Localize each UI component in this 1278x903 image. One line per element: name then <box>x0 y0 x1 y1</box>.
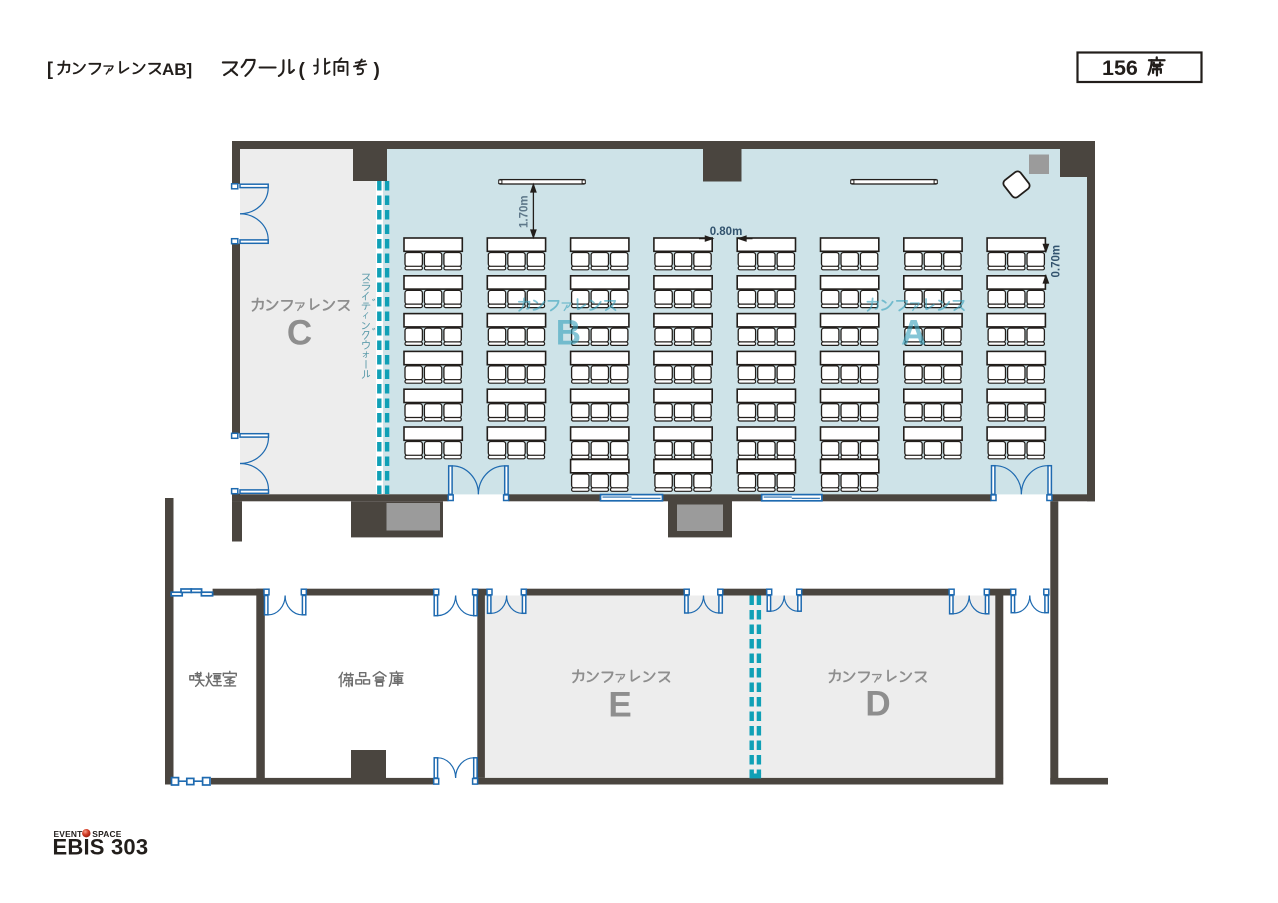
svg-text:B: B <box>556 314 581 353</box>
svg-text:1.70m: 1.70m <box>519 195 531 228</box>
svg-text:0.70m: 0.70m <box>1051 245 1063 278</box>
svg-text:E: E <box>608 686 631 725</box>
svg-text:C: C <box>287 314 312 353</box>
svg-text:0.80m: 0.80m <box>710 226 743 238</box>
svg-text:A: A <box>901 314 926 353</box>
svg-text:(: ( <box>299 60 306 81</box>
svg-text:D: D <box>865 685 890 724</box>
svg-text:[: [ <box>47 59 53 79</box>
svg-text:AB]: AB] <box>162 60 192 79</box>
svg-text:EBIS 303: EBIS 303 <box>53 835 149 860</box>
svg-text:): ) <box>374 60 380 81</box>
svg-text:156: 156 <box>1102 56 1138 80</box>
